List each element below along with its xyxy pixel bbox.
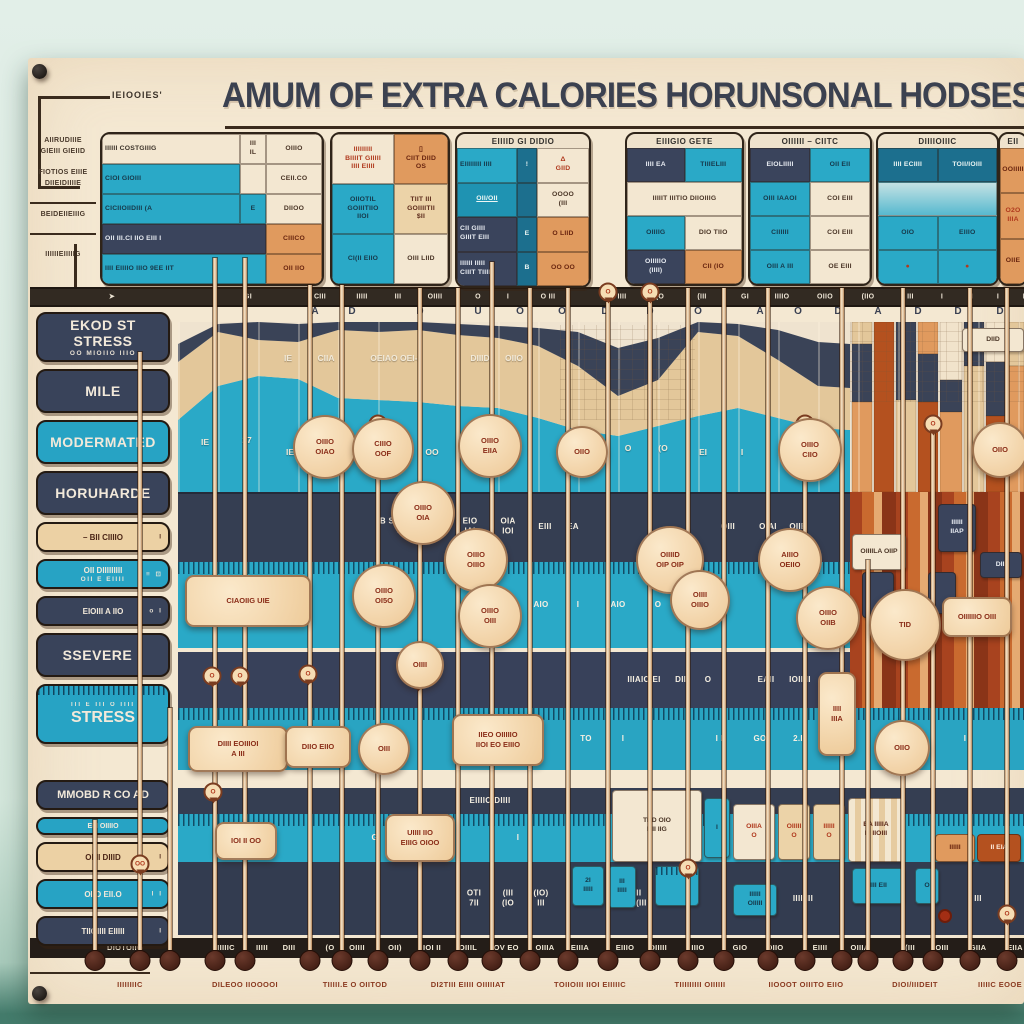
timeline-tick-band: ➤GICIIIIIIIIIIIOIIIIOIO IIIIIII(O(IIIGII… [30, 287, 1024, 307]
column-letter: D [954, 306, 961, 317]
sidebar-pill: HORUHARDE [36, 471, 170, 515]
overlay-box: III IIIII [608, 866, 636, 908]
sidebar-pill: TIIOIIII EIIIII I [36, 916, 170, 946]
chart-value-label: I [741, 447, 743, 457]
circle-badge: OIIO [874, 720, 930, 776]
caption-label: IIIIIC EOOE [978, 980, 1022, 989]
circle-badge: OIIIO OIIIO [444, 528, 508, 592]
tick-label: O III [541, 292, 556, 301]
legend-box-2: IIIIIIIII BIIIIT GIIIII IIII EIIII▯ CIIT… [330, 132, 450, 286]
legend-cell: ● [938, 250, 998, 284]
column-letter: D [996, 306, 1003, 317]
axis-label: OII) [388, 943, 402, 953]
band-label: 2.I [793, 734, 803, 744]
pill-label: EIOIII A IIO [83, 607, 124, 616]
legend-cell: TOII/IOIII [938, 148, 998, 182]
legend-cell: OIIIO [266, 134, 322, 164]
band-label: O [705, 675, 712, 685]
axis-label: OIIII [349, 943, 365, 953]
column-letter: D [348, 306, 355, 317]
circle-badge: OIIIO OIA [391, 481, 455, 545]
pushpin-icon [32, 64, 47, 79]
pill-label: OII DIIIIIIIII [84, 566, 123, 575]
sidebar-pill: EIOIII A IIO o I [36, 596, 170, 626]
sidebar-pill: – BII CIIIIO I [36, 522, 170, 552]
teardrop-pin-icon: O [203, 667, 222, 686]
legend-box-title: OIIIIII – CIITC [750, 134, 870, 148]
legend-cell: E [517, 217, 537, 252]
tick-label: I [507, 292, 509, 301]
pin-string [803, 430, 807, 950]
column-letter: O [558, 306, 566, 317]
legend-box-3: EIIIID GI DIDIO EIIIIIIII IIII!Δ GIIDOII… [455, 132, 591, 288]
pill-label: STRESS [71, 709, 135, 727]
legend-cell: IIII EIIIIO IIIO 9EE IIT [102, 254, 266, 284]
chart-value-label: (O [658, 443, 667, 453]
teardrop-pin-icon: O [641, 283, 660, 302]
legend-cell: OIO [878, 216, 938, 250]
title-bracket-line [38, 96, 110, 99]
legend-cell [878, 182, 997, 216]
grid-pattern [560, 325, 695, 420]
tick-label: (III [697, 292, 706, 301]
legend-cell: OO OO [537, 252, 589, 287]
pill-icons: I I [152, 891, 163, 898]
legend-cell: IIIIIIIII BIIIIT GIIIII IIII EIIII [332, 134, 394, 184]
legend-cell: ! [517, 148, 537, 183]
band-label: IIIAIO EI [627, 675, 660, 685]
band-label: I [577, 600, 580, 610]
pill-label: MILE [85, 383, 120, 399]
column-letter: O [516, 306, 524, 317]
sidebar-pill: OII DIIIIIIIII OII E EIIII ≡ ⊡ [36, 559, 170, 589]
circle-badge: OIIIO OIII [458, 584, 522, 648]
legend-cell: TIIIELIII [685, 148, 743, 182]
tick-label: IIII [618, 292, 627, 301]
legend-cell: OII EII [810, 148, 870, 182]
chart-value-label: OO [425, 447, 438, 457]
band-label: (IO) III [534, 888, 549, 909]
title-tag: IEIOOIES' [112, 90, 163, 100]
overlay-box: EA IIIIIA III IIOIII [848, 798, 904, 862]
circle-badge: OIIO [556, 426, 608, 478]
caption-label: DIOI/IIIDEIT [892, 980, 938, 989]
sidebar-pill: MILE [36, 369, 170, 413]
legend-box-7: EII OOIIIIIO2O IIIAOIIE [998, 132, 1024, 286]
margin-label: BEIDEIIEIIIG [30, 210, 96, 221]
tick-label: I [941, 292, 943, 301]
legend-cell: O2O IIIA [1000, 193, 1024, 238]
axis-label: EIIIO [616, 943, 635, 953]
bottom-captions: IIIIIIIICDILEOO IIOOOOITIIIII.E O OIITOD… [0, 980, 1024, 1000]
circle-badge: OIIIO OIAO [293, 415, 357, 479]
tick-label: GI [741, 292, 749, 301]
title-underline [225, 126, 1024, 129]
legend-cell: OII IIO [266, 254, 322, 284]
pill-icons: I [159, 534, 163, 541]
band-label: III [974, 893, 982, 903]
pill-icons: I [159, 928, 163, 935]
overlay-box: OIIIILA OIIP [852, 534, 906, 570]
legend-cell: CIIIIII [750, 216, 810, 250]
circle-badge: OIIII OIIIO [670, 570, 730, 630]
margin-rule [30, 972, 150, 974]
pill-label: EKOD ST STRESS [44, 317, 162, 349]
legend-box-6: DIIIIOIIIC IIII ECIIIITOII/IOIIIOIOEIIIO… [876, 132, 999, 286]
tick-label: OIIII [428, 292, 443, 301]
tick-label: IIIII [356, 292, 367, 301]
legend-cell: CICIIOIIDIII (A [102, 194, 240, 224]
infographic-poster-scene: IEIOOIES' AMUM OF EXTRA CALORIES HORUNSO… [0, 0, 1024, 1024]
legend-cell: DIO TIIO [685, 216, 743, 250]
legend-cell: CII GIIII GIIIT EIII [457, 217, 517, 252]
sidebar-pill: EKOD ST STRESS OO MIOIIO IIIO [36, 312, 170, 362]
teardrop-pin-icon [938, 909, 952, 923]
pill-badge: IOI II OO [215, 822, 277, 860]
chart-value-label: IE [284, 353, 292, 363]
pill-icons: o I [149, 608, 163, 615]
pill-label: – BII CIIIIO [83, 533, 123, 542]
legend-box-1: IIIIII COSTGIIIGIII ILOIIIOCIOI GIOIIICE… [100, 132, 324, 286]
band-label: OTI 7II [467, 888, 481, 909]
margin-label: FIOTIOS EIIIE DIIEIDIIIIE [30, 168, 96, 189]
band-label: TO [580, 734, 592, 744]
legend-cell: Δ GIID [537, 148, 589, 183]
pin-string [340, 285, 344, 950]
pill-badge: CIAOIIG UIE [185, 575, 311, 627]
sidebar-labels-bottom: MMOBD R CO AD EIII OIIIIO OIIII DIIID I … [36, 780, 170, 946]
band-label: EIII [538, 522, 551, 532]
column-letter: D [914, 306, 921, 317]
legend-cell: OIIOTIL GOIIITIIO IIOI [332, 184, 394, 234]
circle-badge: OIIIO EIIA [458, 414, 522, 478]
pin-string [931, 430, 935, 950]
tick-label: O [475, 292, 481, 301]
pin-string [566, 288, 570, 950]
legend-cell: OIIIIIO (IIII) [627, 250, 685, 284]
legend-cell: O LIID [537, 217, 589, 252]
pill-label: HORUHARDE [55, 485, 151, 501]
band-label: IOIIIII [789, 675, 811, 685]
circle-badge: AIIIO OEIIO [758, 528, 822, 592]
tick-label: IIIIO [775, 292, 790, 301]
legend-box-title: EIIIGIO GETE [627, 134, 742, 148]
legend-cell: EIIIO [938, 216, 998, 250]
teardrop-pin-icon: O [924, 415, 943, 434]
sidebar-labels-top: EKOD ST STRESS OO MIOIIO IIIO MILE MODER… [36, 312, 170, 744]
chart-value-label: IE [201, 437, 209, 447]
sidebar-pill: OI/O EII.O I I [36, 879, 170, 909]
column-letter: A [311, 306, 318, 317]
overlay-box: II EIA [977, 834, 1021, 862]
axis-label: GIO [733, 943, 748, 953]
pill-pre-text: III E III O IIII [71, 702, 135, 708]
circle-badge: OIIII [396, 641, 444, 689]
legend-cell: OIII A III [750, 250, 810, 284]
overlay-box: I [704, 798, 730, 858]
column-letter: O [694, 306, 702, 317]
band-label: I [964, 734, 967, 744]
teardrop-pin-icon: O [299, 665, 318, 684]
teardrop-pin-icon: O [998, 905, 1017, 924]
pin-string [93, 820, 97, 950]
legend-cell: COI EIII [810, 216, 870, 250]
legend-cell: B [517, 252, 537, 287]
page-title: AMUM OF EXTRA CALORIES HORUNSONAL HODSES… [222, 76, 983, 116]
pill-badge: IIEO OIIIIIO IIOI EO EIIIO [452, 714, 544, 766]
legend-box-5: OIIIIII – CIITC EIOLIIIIIOII EIIOIII IAA… [748, 132, 872, 286]
chart-value-label: CIIA [318, 353, 335, 363]
overlay-box: DIII [980, 552, 1022, 578]
legend-cell: E [240, 194, 266, 224]
pill-sub-text: OII E EIIII [81, 576, 126, 583]
chart-value-label: O [625, 443, 632, 453]
legend-cell [517, 183, 537, 218]
legend-cell: CII (IO [685, 250, 743, 284]
pill-badge: IIII IIIA [818, 672, 856, 756]
legend-cell: III IL [240, 134, 266, 164]
column-letter: A [756, 306, 763, 317]
caption-label: IIOOOT OIIITO EIIO [769, 980, 844, 989]
legend-cell: OII III.CI IIO EIII I [102, 224, 266, 254]
legend-cell: ● [878, 250, 938, 284]
caption-label: TOIIOIII IIOI EIIIIIC [554, 980, 626, 989]
legend-box-title: EIIIID GI DIDIO [457, 134, 589, 148]
tick-label: ➤ [109, 292, 115, 301]
circle-badge: OIIIO OI5O [352, 564, 416, 628]
column-letter: A [874, 306, 881, 317]
tick-label: (IIO [862, 292, 875, 301]
circle-badge: CIIIO OOF [352, 418, 414, 480]
pill-icons: ≡ ⊡ [146, 570, 163, 578]
pin-string [766, 288, 770, 950]
legend-cell: OOOO (III [537, 183, 589, 218]
band-label: GO [753, 734, 766, 744]
legend-cell: IIIIII IIIII CIIIT TIIII [457, 252, 517, 287]
pill-badge: OIIIIIIO OIII [942, 597, 1012, 637]
caption-label: IIIIIIIIC [117, 980, 143, 989]
legend-box-title: DIIIIOIIIC [878, 134, 997, 148]
teardrop-pin-icon: OO [131, 855, 150, 874]
caption-label: TIIIII.E O OIITOD [323, 980, 388, 989]
legend-cell: ▯ CIIT DIID OS [394, 134, 448, 184]
teardrop-pin-icon: O [204, 783, 223, 802]
overlay-box: IIII EII [852, 868, 904, 904]
pill-label: OI/O EII.O [84, 890, 121, 899]
axis-label: EIIII [813, 943, 828, 953]
legend-cell: OII/OII [457, 183, 517, 218]
tick-label: III [395, 292, 402, 301]
legend-cell: IIII EA [627, 148, 685, 182]
pushpin-icon [32, 986, 47, 1001]
tick-label: OIIO [817, 292, 833, 301]
legend-cell: OIII LIID [394, 234, 448, 284]
chart-value-label: EI [699, 447, 707, 457]
pill-label: TIIOIIII EIIIII [81, 927, 124, 936]
band-label: (III (IO [502, 888, 514, 909]
pin-string [528, 288, 532, 950]
circle-badge: OIII [358, 723, 410, 775]
legend-cell: COI EIII [810, 182, 870, 216]
chart-value-label: OIIO [505, 353, 523, 363]
chart-value-label: OEIAO OEI-I [370, 353, 420, 363]
axis-label: OIIIA [535, 943, 554, 953]
band-label: OIA IOI [500, 517, 515, 538]
legend-cell: OE EIII [810, 250, 870, 284]
axis-label: (O [326, 943, 335, 953]
chart-value-label: DIIID [470, 353, 489, 363]
pill-badge: DIIO EIIO [285, 726, 351, 768]
tick-label: CIII [314, 292, 326, 301]
circle-badge: TID [869, 589, 941, 661]
overlay-box: IIIIII OIIIII [733, 884, 777, 916]
legend-cell: OIIE [1000, 239, 1024, 284]
overlay-box: O [915, 868, 939, 904]
pill-badge: DIIII EOIIIOI A III [188, 726, 288, 772]
legend-cell: OIIIIG [627, 216, 685, 250]
legend-cell: EIIIIIIII IIII [457, 148, 517, 183]
sidebar-pill: OIIII DIIID I [36, 842, 170, 872]
pill-sub-text: OO MIOIIO IIIO [70, 350, 136, 357]
legend-cell [240, 164, 266, 194]
margin-label: IIIIIIEIIIIIG [30, 250, 96, 261]
legend-box-title: EII [1000, 134, 1024, 148]
axis-label: DIII [283, 943, 296, 953]
legend-cell: CIOI GIOIII [102, 164, 240, 194]
pin-string [648, 302, 652, 950]
column-letter: U [474, 306, 481, 317]
band-label: O [655, 600, 662, 610]
band-label: I [517, 833, 520, 843]
circle-badge: OIIIO CIIO [778, 418, 842, 482]
margin-rule [30, 202, 96, 204]
sidebar-pill: SSEVERE! [36, 633, 170, 677]
column-letter: O [794, 306, 802, 317]
teardrop-pin-icon: O [679, 859, 698, 878]
pill-badge: UIIII IIO EIIIG OIOO [385, 814, 455, 862]
pill-label: OIIII DIIID [85, 853, 121, 862]
tick-label: I [997, 292, 999, 301]
circle-badge: OIIO [972, 422, 1024, 478]
pin-string [606, 302, 610, 950]
legend-cell: EIOLIIIII [750, 148, 810, 182]
overlay-box: 2I IIIII [572, 866, 604, 906]
axis-label: IIIII [256, 943, 268, 953]
legend-cell: DIIOO [266, 194, 322, 224]
pill-icons: I [159, 854, 163, 861]
legend-cell: IIIIII COSTGIIIG [102, 134, 240, 164]
teardrop-pin-icon: O [599, 283, 618, 302]
caption-label: TIIIIIIIII OIIIIII [675, 980, 726, 989]
band-label: AIO [533, 600, 548, 610]
caption-label: DI2TIII EIIII OIIIIIAT [431, 980, 506, 989]
pin-string [168, 708, 172, 950]
legend-cell: IIII ECIIII [878, 148, 938, 182]
pill-label: SSEVERE! [63, 647, 144, 663]
legend-cell: OIII IAAOI [750, 182, 810, 216]
legend-cell: CIIICO [266, 224, 322, 254]
legend-cell: CI(II EIIO [332, 234, 394, 284]
caption-label: DILEOO IIOOOOI [212, 980, 278, 989]
legend-cell: IIIIIT IIITIO DIIOIIIG [627, 182, 742, 216]
margin-label: AIIRUDIIIE GIEIII GIEIID [30, 136, 96, 157]
pill-label: MMOBD R CO AD [57, 789, 149, 801]
pin-string [376, 430, 380, 950]
margin-rule [30, 233, 96, 235]
legend-cell: TIIT III GOIIIITII $II [394, 184, 448, 234]
band-label: I [622, 734, 625, 744]
sidebar-pill: MODERMATED [36, 420, 170, 464]
sidebar-pill: EIII OIIIIO [36, 817, 170, 835]
circle-badge: OIIIO OIIB [796, 586, 860, 650]
sidebar-pill: III E III O IIII STRESS [36, 684, 170, 744]
band-label: AIO [610, 600, 625, 610]
teardrop-pin-icon: O [231, 667, 250, 686]
legend-cell: CEII.CO [266, 164, 322, 194]
legend-cell: OOIIIII [1000, 148, 1024, 193]
legend-box-4: EIIIGIO GETE IIII EATIIIELIIIIIIIIT IIIT… [625, 132, 744, 286]
sidebar-pill: MMOBD R CO AD [36, 780, 170, 810]
